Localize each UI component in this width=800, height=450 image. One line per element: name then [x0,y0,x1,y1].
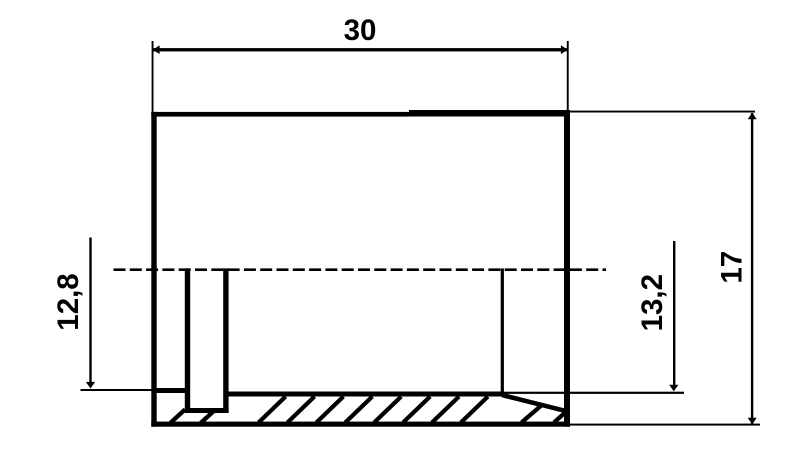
svg-text:12,8: 12,8 [52,273,85,330]
svg-text:30: 30 [344,14,377,47]
svg-text:13,2: 13,2 [636,274,669,331]
svg-text:17: 17 [715,251,748,284]
